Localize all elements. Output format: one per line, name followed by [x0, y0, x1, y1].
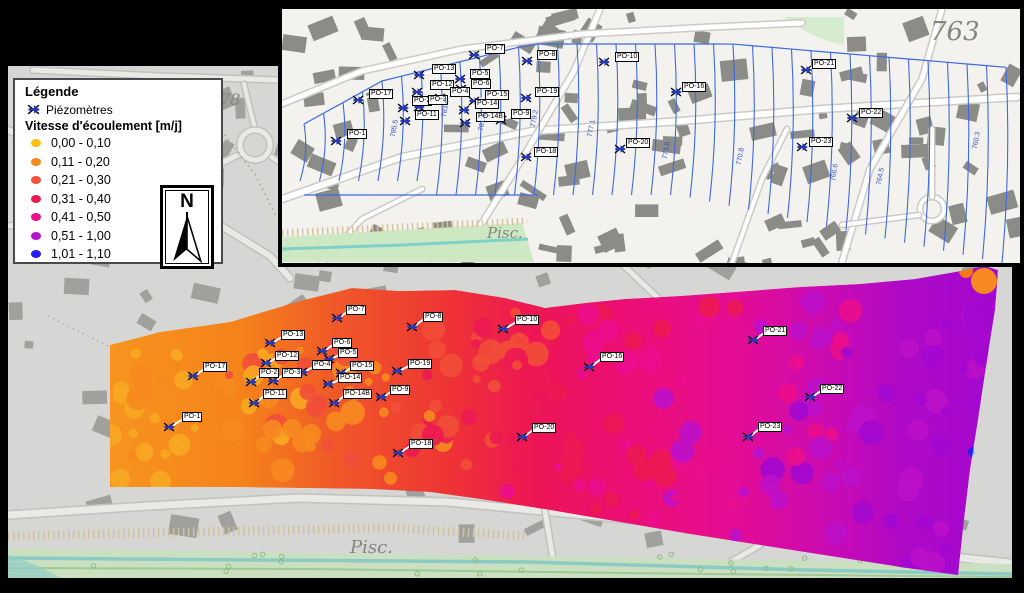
piezometer-marker	[331, 312, 343, 324]
piezometer-marker	[391, 365, 403, 377]
legend-class-range: 0,51 - 1,00	[51, 229, 111, 243]
piezometer-label: PO-19	[409, 360, 431, 368]
piezometer-label: PO-7	[486, 45, 504, 53]
piezometer-label: PO-12	[431, 81, 453, 89]
piezometer-marker	[747, 334, 759, 346]
piezometer-marker	[322, 378, 334, 390]
piezometer-label: PO-3	[283, 369, 301, 377]
piezometer-label: PO-10	[516, 316, 538, 324]
piezometer-label: PO-5	[339, 349, 357, 357]
piezometer-marker	[742, 431, 754, 443]
piezometer-label: PO-12	[276, 352, 298, 360]
piezometer-label: PO-17	[204, 363, 226, 371]
legend-class-row: 0,11 - 0,20	[25, 153, 221, 172]
piezometer-marker	[264, 337, 276, 349]
piezometer-marker	[804, 391, 816, 403]
piezometer-label: PO-23	[759, 423, 781, 431]
piezometer-marker	[392, 447, 404, 459]
piezometer-label: PO-6	[472, 80, 490, 88]
piezometer-marker	[413, 69, 425, 81]
map-place-label: 763	[930, 17, 980, 47]
inset-map-inner: Pisc.763785.5783.4781.4779.2777.1773.877…	[282, 9, 1020, 263]
piezometer-label: PO-18	[410, 440, 432, 448]
piezometer-marker	[670, 86, 682, 98]
piezometer-label: PO-8	[424, 313, 442, 321]
piezometer-label: PO-22	[860, 109, 882, 117]
map-place-label: 78	[220, 90, 240, 109]
legend-title: Légende	[25, 84, 221, 99]
piezometer-marker	[459, 117, 471, 129]
piezometer-label: PO-14B	[344, 390, 371, 398]
piezometer-label: PO-18	[535, 148, 557, 156]
inset-map: Pisc.763785.5783.4781.4779.2777.1773.877…	[278, 5, 1024, 267]
piezometer-label: PO-5	[471, 70, 489, 78]
legend-class-color-dot	[31, 250, 41, 258]
legend-velocity-title: Vitesse d'écoulement [m/j]	[25, 119, 221, 133]
piezometer-label: PO-8	[538, 51, 556, 59]
piezometer-marker	[260, 357, 272, 369]
piezometer-marker	[516, 431, 528, 443]
piezometer-label: PO-19	[536, 88, 558, 96]
piezometer-label: PO-23	[810, 138, 832, 146]
piezometer-marker	[163, 421, 175, 433]
legend-class-range: 0,00 - 0,10	[51, 136, 111, 150]
piezometer-label: PO-15	[486, 91, 508, 99]
piezometer-label: PO-15	[351, 362, 373, 370]
piezometer-marker	[520, 151, 532, 163]
legend-class-range: 0,31 - 0,40	[51, 192, 111, 206]
piezometer-marker	[328, 397, 340, 409]
piezometer-label: PO-13	[282, 331, 304, 339]
piezometer-marker	[583, 361, 595, 373]
piezometer-marker	[796, 141, 808, 153]
piezometer-marker	[800, 64, 812, 76]
figure-canvas: Pisc.78PO-7PO-13PO-12PO-6PO-5PO-4PO-15PO…	[0, 0, 1024, 593]
piezometer-label: PO-4	[313, 361, 331, 369]
piezometer-icon	[25, 103, 41, 116]
piezometer-label: PO-9	[512, 110, 530, 118]
piezometer-marker	[248, 397, 260, 409]
piezometer-marker	[521, 55, 533, 67]
legend-class-range: 0,11 - 0,20	[51, 155, 110, 169]
piezometer-label: PO-21	[764, 327, 786, 335]
piezometer-marker	[397, 102, 409, 114]
legend-piezometer-label: Piézomètres	[46, 103, 113, 117]
north-arrow-box: N	[160, 185, 214, 269]
legend-class-color-dot	[31, 139, 41, 147]
piezometer-label: PO-1	[183, 413, 201, 421]
legend-class-row: 0,00 - 0,10	[25, 134, 221, 153]
piezometer-label: PO-6	[333, 339, 351, 347]
piezometer-label: PO-11	[264, 390, 286, 398]
map-place-label: Pisc.	[487, 224, 523, 242]
piezometer-marker	[497, 323, 509, 335]
piezometer-label: PO-9	[391, 386, 409, 394]
map-place-label: Pisc.	[350, 537, 393, 558]
legend-class-color-dot	[31, 213, 41, 221]
piezometer-label: PO-16	[683, 83, 705, 91]
piezometer-label: PO-22	[821, 385, 843, 393]
piezometer-label: PO-16	[601, 353, 623, 361]
piezometer-label: PO-17	[370, 90, 392, 98]
piezometer-label: PO-14	[339, 374, 361, 382]
piezometer-marker	[352, 94, 364, 106]
piezometer-label: PO-2	[260, 369, 278, 377]
piezometer-label: PO-13	[433, 65, 455, 73]
piezometer-marker	[245, 376, 257, 388]
piezometer-marker	[187, 370, 199, 382]
legend-class-color-dot	[31, 158, 41, 166]
legend-class-color-dot	[31, 195, 41, 203]
piezometer-label: PO-10	[616, 53, 638, 61]
piezometer-marker	[399, 115, 411, 127]
legend-class-range: 1,01 - 1,10	[51, 247, 111, 261]
piezometer-marker	[406, 321, 418, 333]
legend-piezometer-row: Piézomètres	[25, 101, 221, 118]
piezometer-marker	[614, 143, 626, 155]
piezometer-marker	[330, 135, 342, 147]
piezometer-label: PO-20	[533, 424, 555, 432]
piezometer-marker	[375, 391, 387, 403]
north-label: N	[180, 192, 194, 212]
piezometer-label: PO-4	[451, 88, 469, 96]
piezometer-marker	[846, 112, 858, 124]
north-arrow-frame: N	[165, 190, 209, 264]
piezometer-label: PO-20	[627, 139, 649, 147]
legend-class-range: 0,21 - 0,30	[51, 173, 111, 187]
piezometer-label: PO-1	[348, 130, 366, 138]
north-arrow-icon	[167, 212, 207, 263]
piezometer-marker	[598, 56, 610, 68]
legend-class-color-dot	[31, 176, 41, 184]
piezometer-label: PO-21	[813, 60, 835, 68]
piezometer-marker	[468, 49, 480, 61]
piezometer-label: PO-14	[476, 100, 498, 108]
piezometer-marker	[458, 104, 470, 116]
piezometer-label: PO-11	[416, 111, 438, 119]
legend-class-range: 0,41 - 0,50	[51, 210, 111, 224]
piezometer-label: PO-7	[347, 306, 365, 314]
piezometer-marker	[520, 92, 532, 104]
legend-class-color-dot	[31, 232, 41, 240]
